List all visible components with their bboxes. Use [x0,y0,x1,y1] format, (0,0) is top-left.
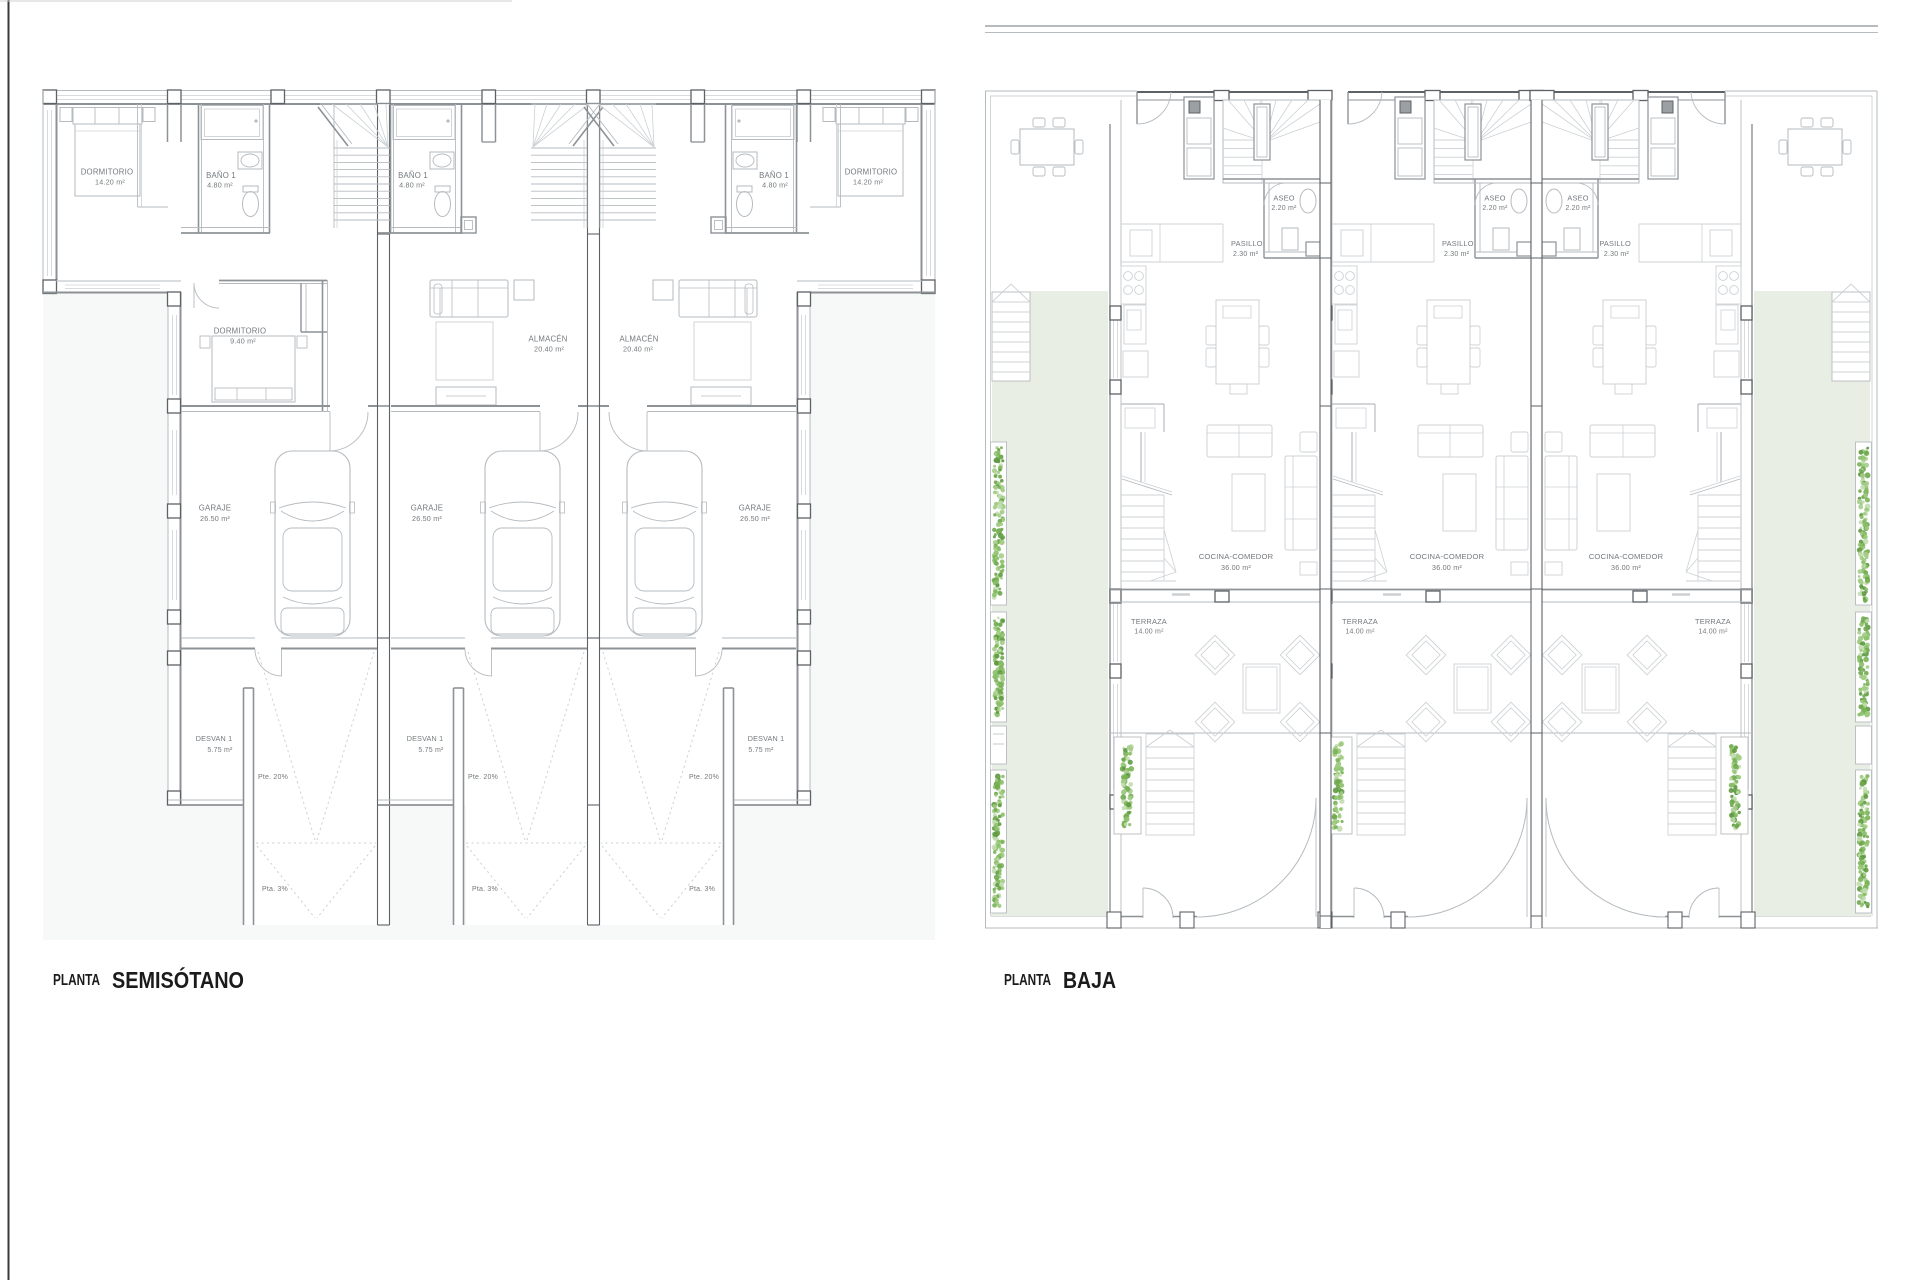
svg-text:Pte. 20%: Pte. 20% [258,774,288,781]
svg-text:TERRAZA: TERRAZA [1131,617,1167,626]
svg-text:20.40 m²: 20.40 m² [534,345,564,354]
svg-text:26.50 m²: 26.50 m² [740,514,770,523]
svg-text:Pte. 20%: Pte. 20% [689,774,719,781]
svg-text:9.40 m²: 9.40 m² [230,337,256,346]
svg-text:BAÑO 1: BAÑO 1 [206,171,236,180]
svg-text:2.30 m²: 2.30 m² [1444,251,1470,258]
svg-text:PASILLO: PASILLO [1442,239,1474,248]
svg-text:GARAJE: GARAJE [411,504,443,513]
svg-text:2.30 m²: 2.30 m² [1604,251,1630,258]
svg-text:DORMITORIO: DORMITORIO [845,168,898,177]
svg-text:BAJA: BAJA [1063,967,1116,993]
svg-text:PASILLO: PASILLO [1231,239,1263,248]
svg-text:36.00 m²: 36.00 m² [1611,563,1641,572]
svg-text:ASEO: ASEO [1273,194,1294,203]
svg-text:BAÑO 1: BAÑO 1 [398,171,428,180]
svg-text:Pta. 3%: Pta. 3% [262,886,288,893]
svg-text:ALMACÉN: ALMACÉN [528,335,567,344]
svg-text:DESVAN 1: DESVAN 1 [748,734,785,743]
svg-text:14.20 m²: 14.20 m² [95,178,125,187]
svg-text:36.00 m²: 36.00 m² [1221,563,1251,572]
svg-text:Pte. 20%: Pte. 20% [468,774,498,781]
svg-text:DESVAN 1: DESVAN 1 [196,734,233,743]
svg-text:26.50 m²: 26.50 m² [200,514,230,523]
svg-text:14.00 m²: 14.00 m² [1345,629,1375,636]
svg-text:PASILLO: PASILLO [1599,239,1631,248]
svg-text:COCINA-COMEDOR: COCINA-COMEDOR [1199,552,1274,561]
svg-text:COCINA-COMEDOR: COCINA-COMEDOR [1589,552,1664,561]
svg-text:DESVAN 1: DESVAN 1 [407,734,444,743]
svg-text:ALMACÉN: ALMACÉN [619,335,658,344]
svg-text:GARAJE: GARAJE [739,504,771,513]
svg-text:BAÑO 1: BAÑO 1 [759,171,789,180]
svg-text:Pta. 3%: Pta. 3% [472,886,498,893]
svg-text:ASEO: ASEO [1484,194,1505,203]
svg-text:DORMITORIO: DORMITORIO [81,168,134,177]
svg-text:TERRAZA: TERRAZA [1695,617,1731,626]
svg-text:20.40 m²: 20.40 m² [623,345,653,354]
svg-text:2.20 m²: 2.20 m² [1565,205,1591,212]
svg-text:14.00 m²: 14.00 m² [1134,629,1164,636]
svg-text:DORMITORIO: DORMITORIO [214,327,267,336]
svg-text:2.20 m²: 2.20 m² [1482,205,1508,212]
svg-text:GARAJE: GARAJE [199,504,231,513]
svg-text:14.20 m²: 14.20 m² [853,178,883,187]
svg-text:PLANTA: PLANTA [1004,972,1051,989]
svg-text:SEMISÓTANO: SEMISÓTANO [112,966,244,993]
svg-text:2.20 m²: 2.20 m² [1271,205,1297,212]
svg-text:36.00 m²: 36.00 m² [1432,563,1462,572]
svg-text:TERRAZA: TERRAZA [1342,617,1378,626]
svg-text:5.75 m²: 5.75 m² [418,747,444,754]
svg-text:5.75 m²: 5.75 m² [748,747,774,754]
svg-text:4.80 m²: 4.80 m² [207,181,233,190]
svg-text:14.00 m²: 14.00 m² [1698,629,1728,636]
svg-text:ASEO: ASEO [1567,194,1588,203]
svg-text:COCINA-COMEDOR: COCINA-COMEDOR [1410,552,1485,561]
svg-text:2.30 m²: 2.30 m² [1233,251,1259,258]
svg-text:4.80 m²: 4.80 m² [762,181,788,190]
svg-text:Pta. 3%: Pta. 3% [689,886,715,893]
svg-text:PLANTA: PLANTA [53,972,100,989]
svg-text:4.80 m²: 4.80 m² [399,181,425,190]
svg-text:5.75 m²: 5.75 m² [207,747,233,754]
svg-text:26.50 m²: 26.50 m² [412,514,442,523]
